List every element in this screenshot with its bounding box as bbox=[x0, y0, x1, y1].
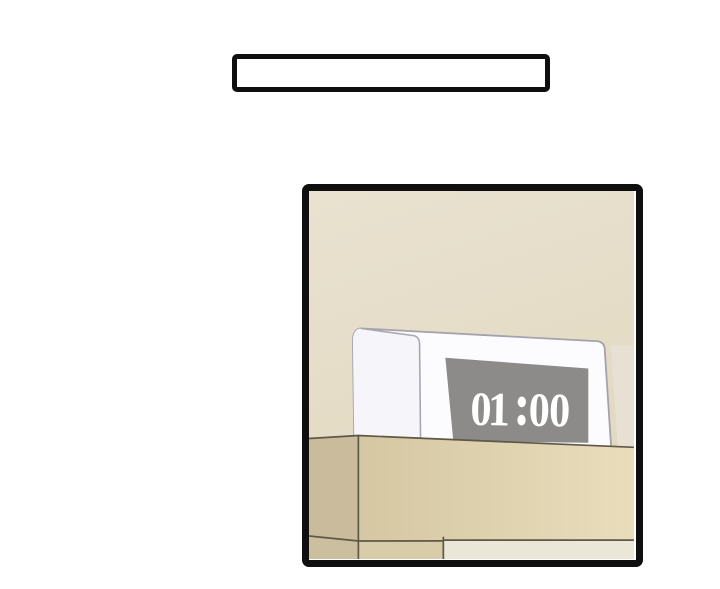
svg-text:0: 0 bbox=[528, 383, 550, 436]
svg-text:0: 0 bbox=[549, 384, 571, 437]
svg-text:1: 1 bbox=[487, 382, 510, 435]
